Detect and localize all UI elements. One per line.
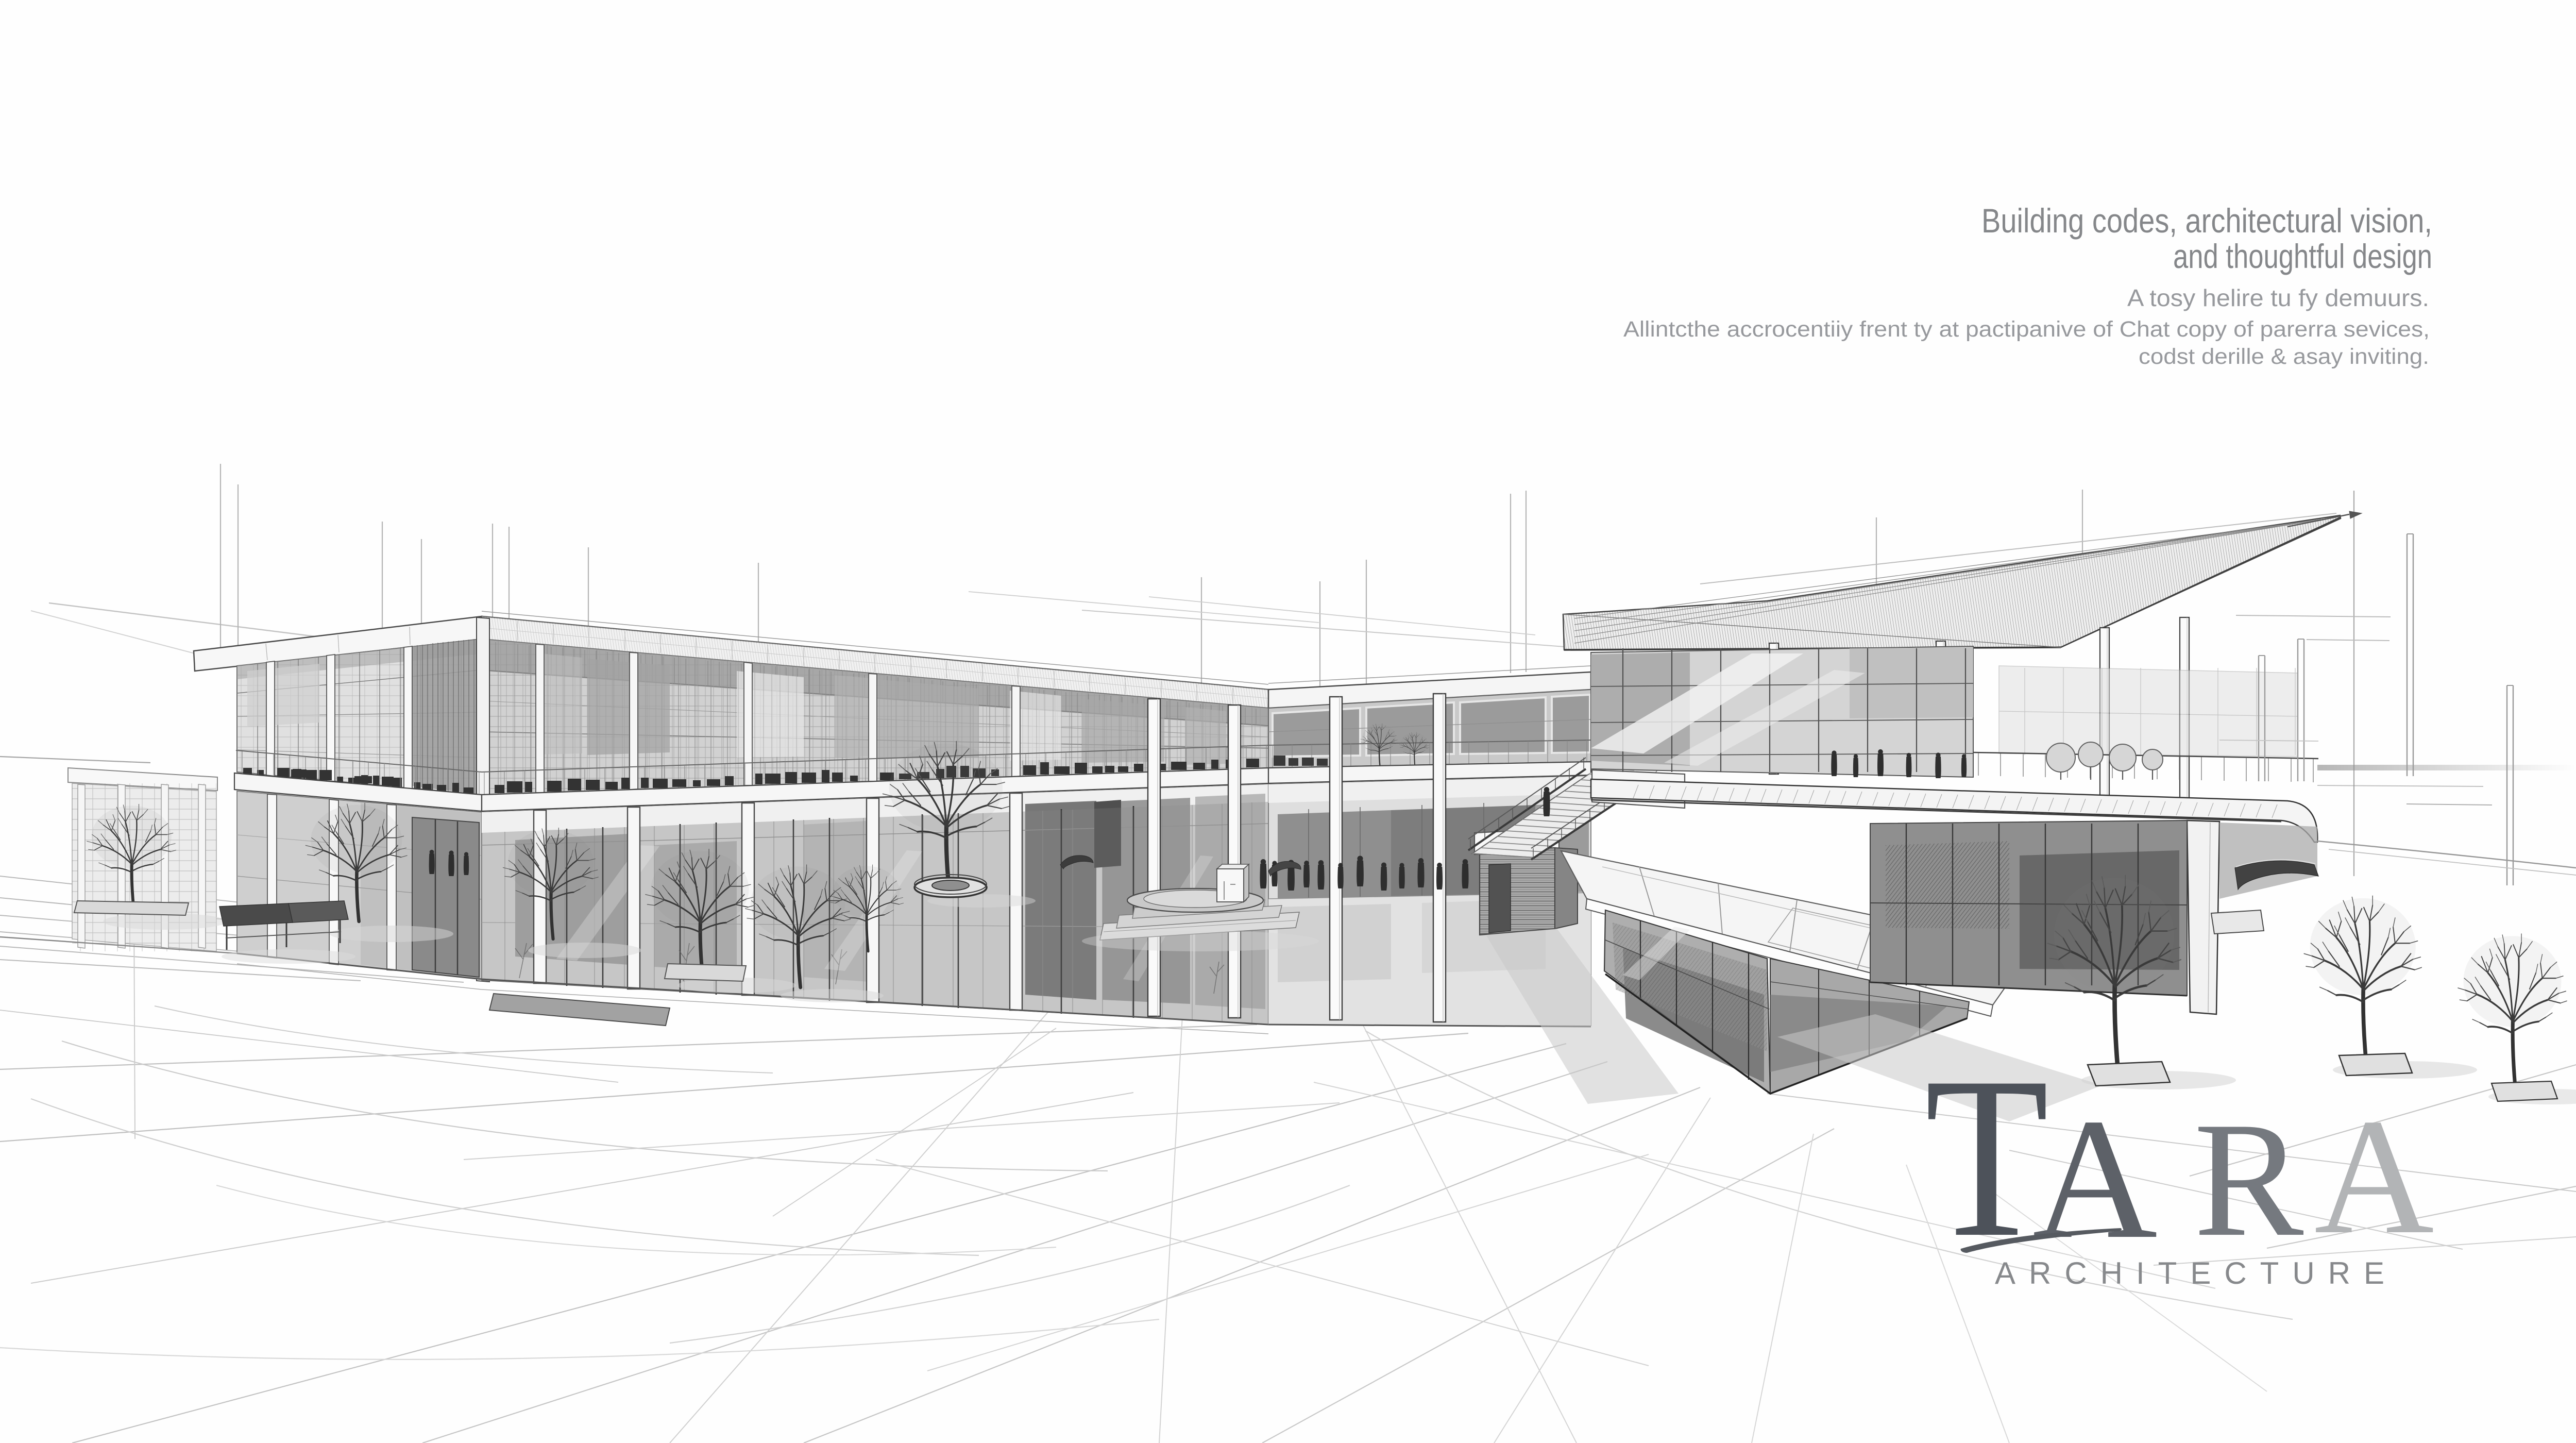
svg-text:codst derille & asay inviting.: codst derille & asay inviting.	[2139, 344, 2429, 369]
svg-text:and thoughtful design: and thoughtful design	[2173, 237, 2432, 275]
svg-text:ARCHITECTURE: ARCHITECTURE	[1995, 1256, 2398, 1290]
svg-text:Building codes, architectural: Building codes, architectural vision,	[1981, 202, 2432, 240]
svg-text:A: A	[2314, 1084, 2434, 1268]
svg-text:Allintcthe accrocentiiy frent: Allintcthe accrocentiiy frent ty at pact…	[1623, 317, 2430, 342]
svg-text:R: R	[2194, 1088, 2304, 1271]
svg-text:A tosy helire tu fy demuurs.: A tosy helire tu fy demuurs.	[2127, 284, 2429, 311]
svg-text:A: A	[2032, 1083, 2158, 1274]
